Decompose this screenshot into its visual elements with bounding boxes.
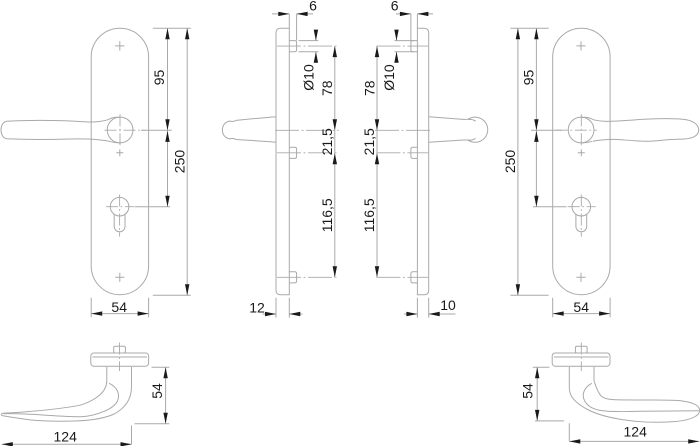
svg-text:250: 250 [172, 150, 188, 174]
svg-text:250: 250 [502, 150, 518, 174]
svg-text:12: 12 [249, 300, 265, 316]
svg-text:116,5: 116,5 [361, 198, 377, 232]
svg-text:116,5: 116,5 [319, 198, 335, 232]
svg-text:Ø10: Ø10 [300, 64, 316, 91]
svg-text:Ø10: Ø10 [381, 64, 397, 91]
svg-text:21,5: 21,5 [361, 128, 377, 155]
svg-text:6: 6 [391, 0, 399, 14]
svg-text:54: 54 [149, 383, 165, 399]
svg-text:54: 54 [519, 383, 535, 399]
svg-text:78: 78 [319, 80, 335, 96]
svg-text:95: 95 [151, 70, 167, 86]
svg-text:78: 78 [361, 80, 377, 96]
svg-text:124: 124 [624, 424, 648, 440]
svg-text:6: 6 [309, 0, 317, 14]
svg-text:54: 54 [111, 299, 127, 315]
svg-text:21,5: 21,5 [319, 128, 335, 155]
svg-text:54: 54 [573, 299, 589, 315]
svg-text:124: 124 [54, 428, 78, 444]
svg-text:10: 10 [440, 297, 456, 313]
svg-text:95: 95 [521, 70, 537, 86]
